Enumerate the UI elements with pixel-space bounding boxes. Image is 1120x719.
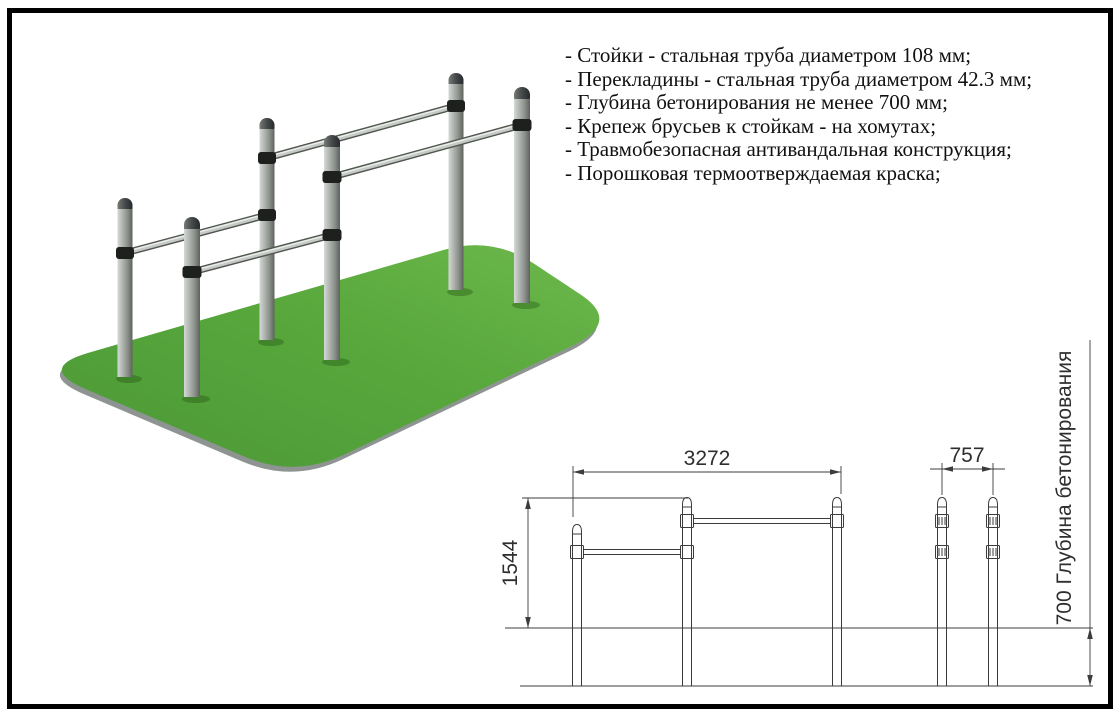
post bbox=[184, 229, 200, 397]
side-post-left bbox=[938, 498, 947, 687]
dimension-depth bbox=[930, 463, 1005, 495]
front-post-left bbox=[573, 525, 582, 687]
back-bars bbox=[125, 105, 456, 253]
front-post-middle bbox=[683, 498, 692, 687]
spec-item-fastening: - Крепеж брусьев к стойкам - на хомутах; bbox=[565, 115, 1110, 139]
post bbox=[449, 84, 464, 290]
front-post-right bbox=[833, 498, 842, 687]
front-view bbox=[571, 498, 844, 687]
dimension-foundation bbox=[1087, 340, 1093, 686]
spec-list: - Стойки - стальная труба диаметром 108 … bbox=[565, 44, 1110, 186]
back-clamps bbox=[116, 100, 465, 259]
side-view bbox=[936, 498, 1000, 687]
spec-item-crossbars: - Перекладины - стальная труба диаметром… bbox=[565, 68, 1110, 92]
dimension-drawing bbox=[505, 340, 1093, 686]
spec-sheet-page: 3272 1544 757 700 Глубина бетонирования … bbox=[0, 0, 1120, 719]
lower-bar bbox=[571, 546, 694, 559]
depth-dim-label: 757 bbox=[949, 444, 984, 467]
side-post-right bbox=[989, 498, 998, 687]
spec-item-foundation: - Глубина бетонирования не менее 700 мм; bbox=[565, 91, 1110, 115]
post bbox=[118, 209, 133, 377]
dimension-height bbox=[522, 498, 688, 628]
height-dim-label: 1544 bbox=[499, 539, 522, 586]
spec-item-construction: - Травмобезопасная антивандальная констр… bbox=[565, 138, 1110, 162]
width-dim-label: 3272 bbox=[684, 447, 731, 470]
dimension-width bbox=[573, 466, 841, 517]
upper-bar bbox=[681, 515, 844, 528]
spec-item-paint: - Порошковая термоотверждаемая краска; bbox=[565, 162, 1110, 186]
equipment-3d-render bbox=[60, 73, 599, 472]
spec-item-posts: - Стойки - стальная труба диаметром 108 … bbox=[565, 44, 1110, 68]
foundation-dim-label: 700 Глубина бетонирования bbox=[1053, 351, 1076, 626]
side-clamps bbox=[936, 515, 1000, 559]
